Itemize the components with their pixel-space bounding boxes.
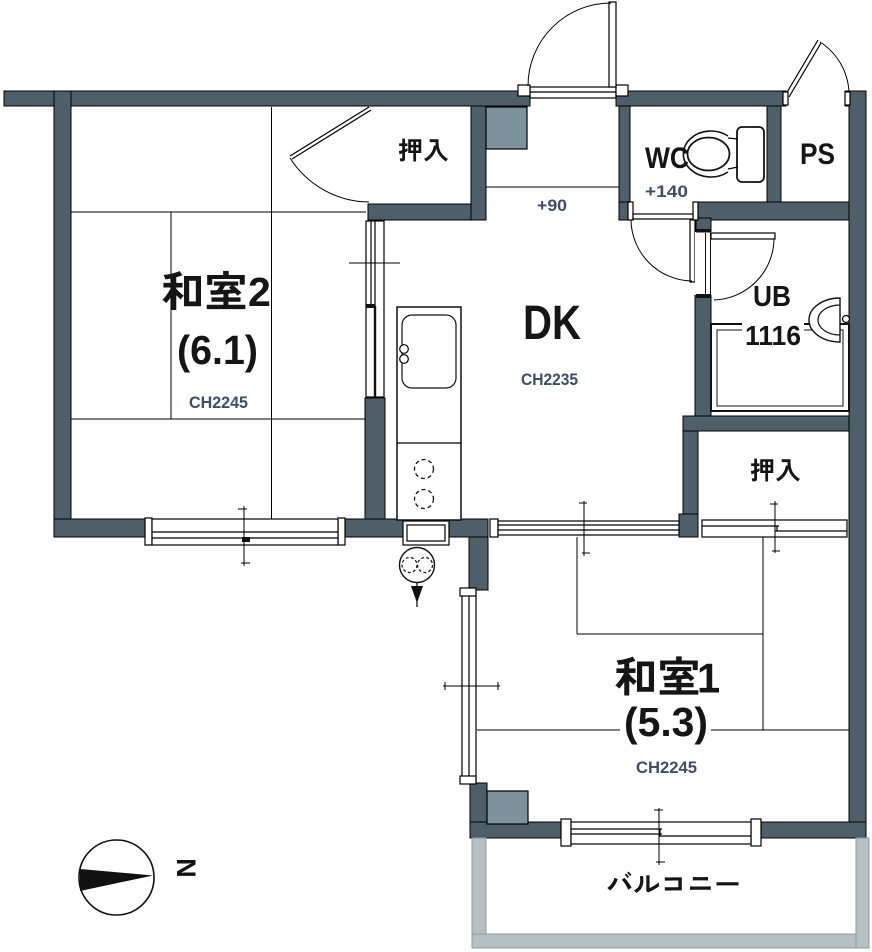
svg-text:DK: DK: [523, 297, 581, 350]
svg-text:1: 1: [697, 655, 720, 701]
svg-text:CH2235: CH2235: [521, 370, 578, 389]
svg-text:WC: WC: [645, 142, 689, 175]
svg-text:CH2245: CH2245: [636, 758, 697, 777]
svg-text:N: N: [171, 858, 201, 878]
svg-text:CH2245: CH2245: [189, 393, 248, 412]
svg-text:UB: UB: [753, 281, 791, 313]
svg-text:(6.1): (6.1): [177, 327, 258, 373]
svg-text:1116: 1116: [745, 320, 801, 351]
svg-text:PS: PS: [800, 138, 835, 171]
svg-text:+90: +90: [537, 196, 567, 215]
svg-text:(5.3): (5.3): [624, 699, 708, 745]
svg-text:+140: +140: [645, 182, 688, 201]
svg-text:2: 2: [248, 269, 271, 315]
